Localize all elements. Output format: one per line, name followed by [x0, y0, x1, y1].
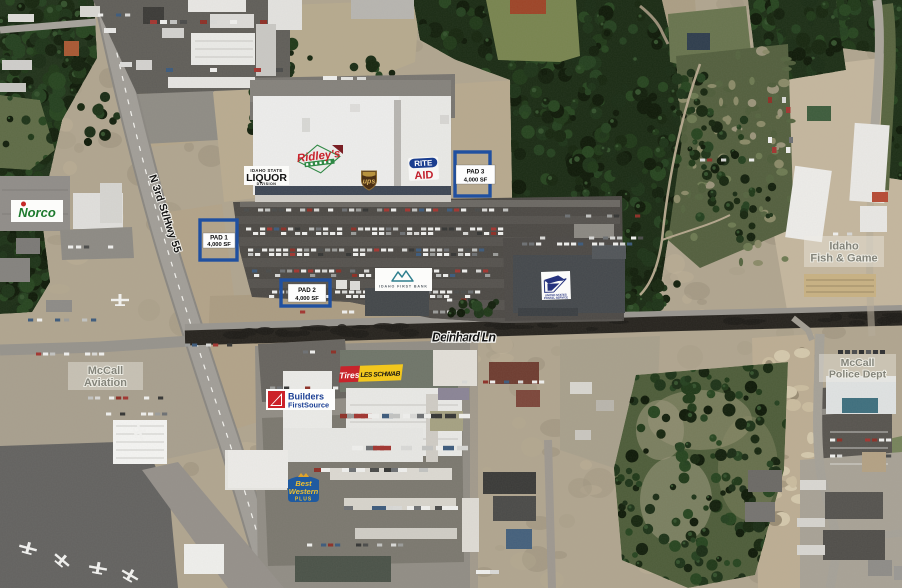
svg-text:LES SCHWAB: LES SCHWAB	[360, 371, 401, 379]
svg-text:4,000 SF: 4,000 SF	[207, 242, 231, 248]
svg-text:PLUS: PLUS	[295, 497, 312, 503]
svg-text:IDAHO FIRST BANK: IDAHO FIRST BANK	[379, 285, 428, 289]
svg-text:Police Dept: Police Dept	[829, 369, 887, 381]
svg-text:Deinhard Ln: Deinhard Ln	[432, 331, 496, 345]
svg-text:McCall: McCall	[88, 365, 123, 377]
svg-text:RITE: RITE	[414, 158, 433, 168]
svg-text:4,000 SF: 4,000 SF	[464, 178, 488, 184]
svg-text:DIVISION: DIVISION	[257, 182, 277, 186]
svg-text:Aviation: Aviation	[84, 377, 127, 389]
svg-text:4,000 SF: 4,000 SF	[295, 296, 319, 302]
svg-text:ups: ups	[363, 179, 376, 186]
svg-text:Fish & Game: Fish & Game	[810, 253, 877, 265]
svg-text:Tires: Tires	[339, 370, 360, 381]
svg-text:FirstSource: FirstSource	[288, 401, 329, 410]
svg-text:Idaho: Idaho	[829, 240, 859, 252]
svg-text:PAD 3: PAD 3	[467, 168, 485, 175]
svg-text:POSTAL SERVICE: POSTAL SERVICE	[544, 295, 568, 300]
svg-text:AID: AID	[414, 169, 434, 182]
svg-text:PAD 2: PAD 2	[298, 287, 316, 294]
svg-text:McCall: McCall	[841, 357, 875, 369]
svg-text:Western: Western	[289, 487, 319, 496]
svg-text:PAD 1: PAD 1	[210, 235, 228, 242]
svg-text:Norco: Norco	[18, 205, 56, 220]
